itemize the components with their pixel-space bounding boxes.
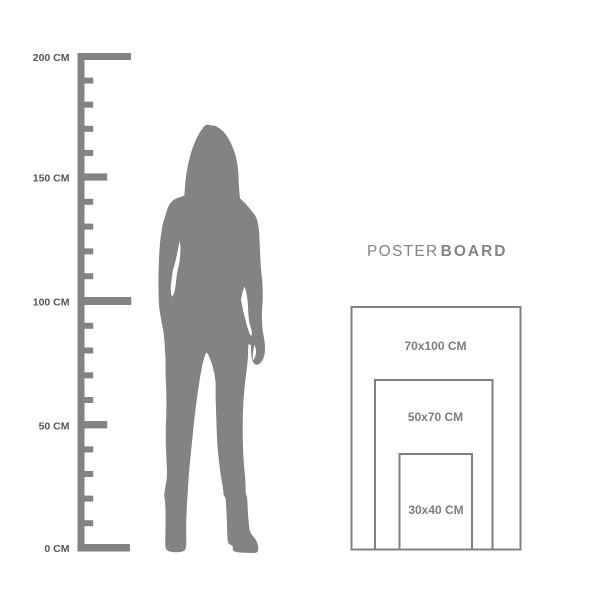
svg-text:100 CM: 100 CM — [33, 297, 70, 309]
svg-text:150 CM: 150 CM — [33, 172, 70, 184]
svg-text:200 CM: 200 CM — [33, 52, 70, 64]
svg-text:50x70 CM: 50x70 CM — [408, 410, 463, 424]
svg-text:POSTER BOARD: POSTER BOARD — [367, 243, 507, 260]
svg-text:30x40 CM: 30x40 CM — [408, 503, 463, 517]
svg-text:70x100 CM: 70x100 CM — [404, 339, 466, 353]
svg-text:50 CM: 50 CM — [39, 420, 70, 432]
svg-text:0 CM: 0 CM — [44, 543, 69, 555]
